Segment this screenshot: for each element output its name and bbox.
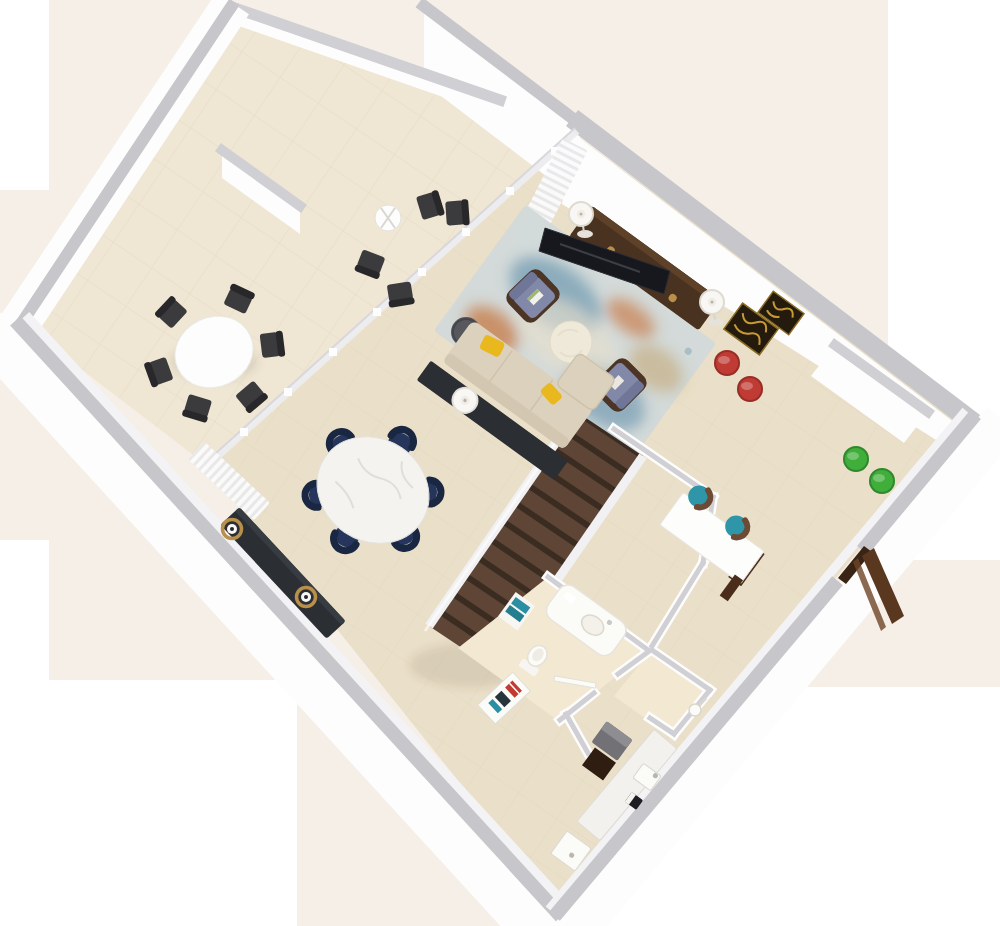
shower-head <box>689 704 701 716</box>
mullion-post <box>462 228 470 236</box>
mullion-post <box>329 348 337 356</box>
bistro-chair <box>445 199 470 227</box>
lounge-chair <box>386 281 415 308</box>
background-patch-top-left <box>0 0 49 190</box>
mullion-post <box>506 187 514 195</box>
floor-plan-svg <box>0 0 1000 926</box>
mullion-post <box>284 388 292 396</box>
floor-plan-render <box>0 0 1000 926</box>
green-stool <box>869 468 895 494</box>
mullion-post <box>418 268 426 276</box>
background-patch-bottom-left <box>49 680 297 926</box>
outdoor-chair <box>259 330 285 359</box>
red-stool <box>714 350 740 376</box>
red-stool <box>737 376 763 402</box>
background-patch-left <box>0 540 49 926</box>
mullion-post <box>373 308 381 316</box>
green-stool <box>843 446 869 472</box>
mullion-post <box>240 428 248 436</box>
